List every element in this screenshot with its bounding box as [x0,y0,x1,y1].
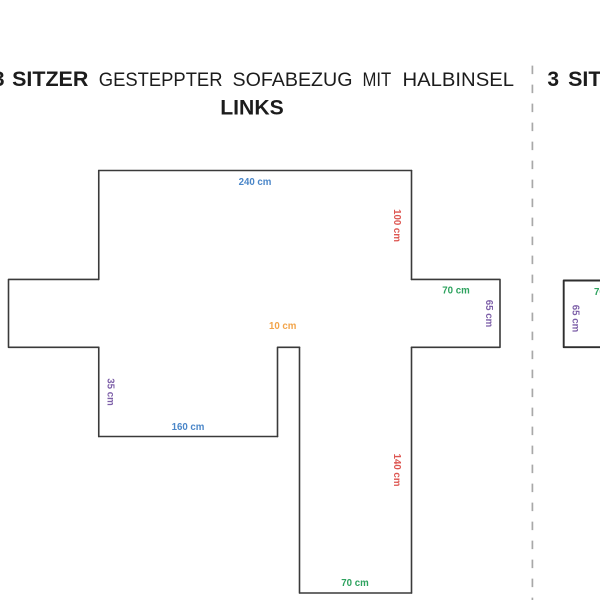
svg-text:70 cm: 70 cm [341,578,369,589]
svg-text:140 cm: 140 cm [391,454,402,487]
svg-text:65 cm: 65 cm [483,300,494,328]
svg-text:100 cm: 100 cm [391,209,402,242]
svg-text:LINKS: LINKS [220,96,284,119]
svg-text:160 cm: 160 cm [172,422,205,433]
svg-text:240 cm: 240 cm [239,177,272,188]
svg-text:10 cm: 10 cm [269,321,297,332]
svg-text:35 cm: 35 cm [105,378,116,406]
svg-text:70 cm: 70 cm [442,286,470,297]
svg-text:70 cm: 70 cm [594,287,600,298]
svg-text:3SITZER: 3SITZER [547,68,600,91]
svg-text:65 cm: 65 cm [570,305,581,333]
svg-text:3SITZERGESTEPPTERSOFABEZUGMITH: 3SITZERGESTEPPTERSOFABEZUGMITHALBINSEL [0,68,514,91]
